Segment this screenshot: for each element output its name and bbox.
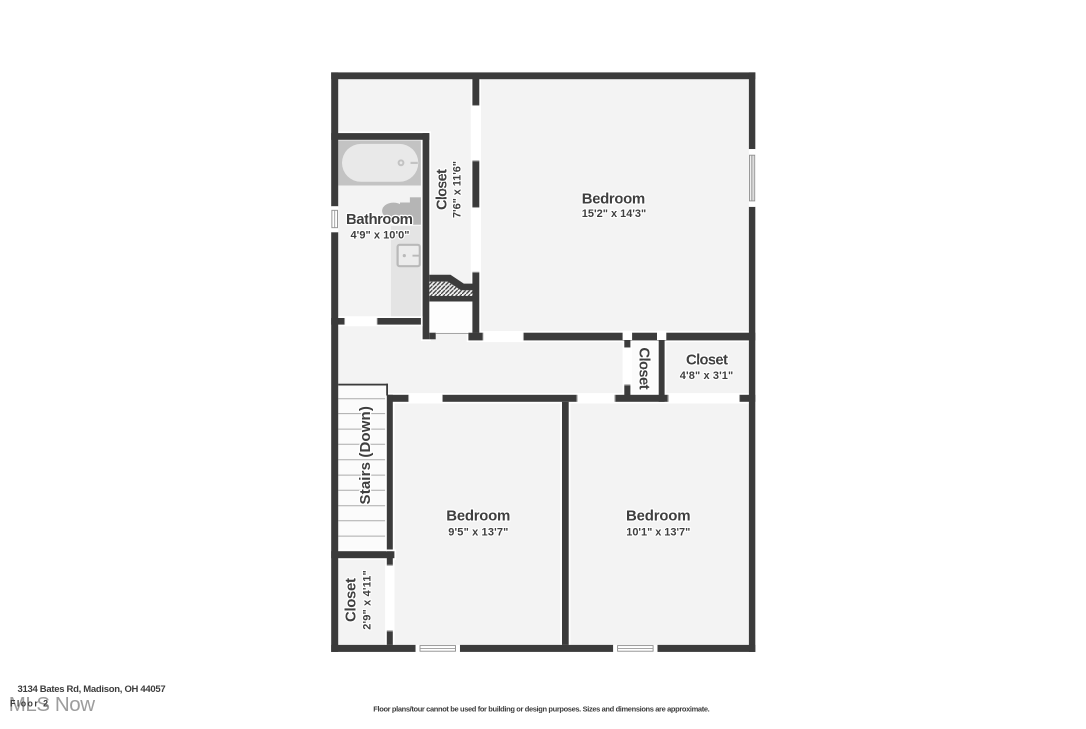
svg-text:Floor plans/tour cannot be use: Floor plans/tour cannot be used for buil… xyxy=(373,705,709,714)
svg-text:9'5" x 13'7": 9'5" x 13'7" xyxy=(448,527,508,539)
svg-text:Closet: Closet xyxy=(343,578,360,622)
svg-text:Closet: Closet xyxy=(686,351,728,368)
svg-text:2'9" x 4'11": 2'9" x 4'11" xyxy=(362,570,374,630)
svg-text:15'2" x 14'3": 15'2" x 14'3" xyxy=(582,208,647,220)
svg-text:4'9" x 10'0": 4'9" x 10'0" xyxy=(351,230,410,242)
svg-text:10'1" x 13'7": 10'1" x 13'7" xyxy=(626,527,690,539)
svg-text:Bedroom: Bedroom xyxy=(626,508,691,525)
svg-text:7'6" x 11'6": 7'6" x 11'6" xyxy=(452,161,464,218)
svg-text:Bathroom: Bathroom xyxy=(346,211,413,228)
svg-text:Closet: Closet xyxy=(434,169,451,210)
svg-text:Stairs (Down): Stairs (Down) xyxy=(357,406,374,504)
svg-text:Closet: Closet xyxy=(636,347,653,389)
svg-text:Bedroom: Bedroom xyxy=(582,191,646,208)
svg-text:4'8" x 3'1": 4'8" x 3'1" xyxy=(680,370,734,382)
svg-text:Bedroom: Bedroom xyxy=(446,508,510,525)
